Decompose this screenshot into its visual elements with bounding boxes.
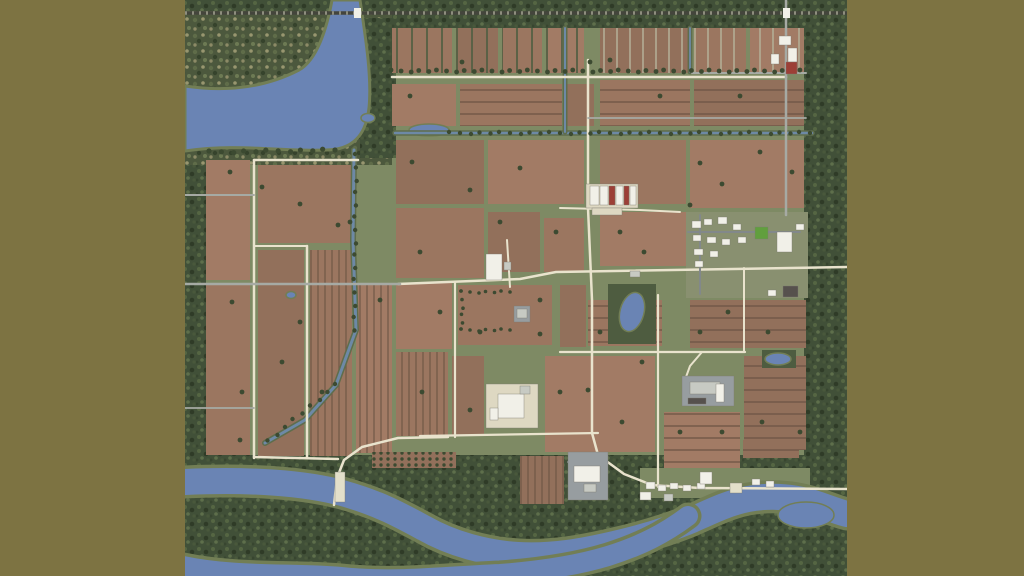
tree-row-tree	[459, 327, 463, 331]
tree	[558, 390, 563, 395]
tree	[598, 330, 603, 335]
tree	[408, 94, 413, 99]
building	[766, 481, 774, 487]
building	[609, 186, 615, 205]
tree-row-tree	[409, 70, 414, 75]
tree-row-tree	[231, 150, 236, 155]
tree-row-tree	[484, 290, 488, 294]
building	[694, 249, 703, 255]
tree-row-tree	[354, 203, 358, 207]
tree-row-tree	[519, 132, 523, 136]
field	[452, 356, 484, 436]
tree-row-tree	[416, 68, 421, 73]
field	[600, 212, 686, 266]
tree-row-tree	[597, 130, 601, 134]
building	[695, 261, 703, 267]
tree-row-tree	[797, 130, 801, 134]
tree-row-tree	[508, 131, 512, 135]
field-rows	[600, 28, 688, 73]
field-rows	[456, 28, 498, 73]
building	[796, 224, 804, 230]
tree-row-tree	[290, 417, 294, 421]
building	[630, 186, 636, 205]
tree-row-tree	[276, 148, 281, 153]
tree	[658, 94, 663, 99]
tree-row-tree	[777, 130, 781, 134]
tree-row-tree	[333, 382, 337, 386]
map-layers	[0, 0, 1024, 576]
tree-row-tree	[681, 70, 686, 75]
building	[786, 62, 797, 74]
building	[777, 232, 792, 252]
tree-row-tree	[447, 130, 451, 134]
building	[590, 186, 599, 205]
tree	[538, 332, 543, 337]
tree-row-tree	[206, 148, 211, 153]
rail-crossing	[783, 8, 790, 18]
building	[335, 472, 345, 502]
building	[707, 237, 716, 243]
building	[690, 382, 720, 394]
tree-row-tree	[454, 70, 459, 75]
tree-row-tree	[669, 132, 673, 136]
building	[574, 466, 600, 482]
building	[592, 208, 622, 215]
tree	[790, 170, 795, 175]
tree-row-tree	[477, 130, 481, 134]
tree-row-tree	[734, 68, 739, 73]
tree	[280, 360, 285, 365]
tree	[760, 420, 765, 425]
pond	[361, 114, 375, 123]
tree-row-tree	[484, 328, 488, 332]
building	[630, 271, 640, 277]
field-rows	[460, 84, 562, 126]
tree	[260, 185, 265, 190]
tree-row-tree	[727, 130, 731, 134]
building	[704, 219, 712, 225]
tree-row-tree	[808, 131, 812, 135]
tree-row-tree	[352, 214, 356, 218]
tree-row-tree	[351, 315, 355, 319]
tree	[798, 430, 803, 435]
tree-row-tree	[490, 69, 495, 74]
field	[458, 285, 552, 345]
tree	[336, 223, 341, 228]
building	[692, 221, 701, 228]
pond	[778, 502, 834, 528]
tree-row-tree	[332, 147, 337, 152]
tree	[240, 390, 245, 395]
tree-row-tree	[780, 68, 785, 73]
tree-row-tree	[697, 130, 701, 134]
tree	[410, 160, 415, 165]
building	[710, 251, 718, 257]
pond	[765, 353, 791, 365]
tree-row-tree	[744, 69, 749, 74]
tree-row-tree	[355, 179, 359, 183]
tree	[758, 150, 763, 155]
tree-row-tree	[353, 304, 357, 308]
field	[396, 208, 484, 278]
tree-row-tree	[352, 290, 356, 294]
building	[688, 398, 706, 404]
tree	[468, 188, 473, 193]
tree-row-tree	[472, 69, 477, 74]
field-rows	[502, 28, 542, 73]
tree-row-tree	[399, 69, 404, 74]
tree-row-tree	[353, 228, 357, 232]
tree-row-tree	[688, 131, 692, 135]
tree-row-tree	[598, 68, 603, 73]
tree	[678, 430, 683, 435]
field	[206, 285, 250, 455]
tree-row-tree	[577, 130, 581, 134]
tree-row-tree	[444, 69, 449, 74]
tree-row-tree	[558, 131, 562, 135]
tree-row-tree	[570, 68, 575, 73]
tree-row-tree	[727, 70, 732, 75]
tree-row-tree	[325, 390, 329, 394]
tree-row-tree	[459, 289, 463, 293]
field	[545, 356, 655, 452]
field-rows	[356, 285, 392, 453]
tree-row-tree	[525, 68, 530, 73]
tree-row-tree	[493, 291, 497, 295]
building	[700, 472, 712, 484]
tree-row-tree	[389, 68, 394, 73]
building	[779, 36, 791, 45]
tree	[468, 408, 473, 413]
building	[771, 54, 779, 64]
tree-row-tree	[654, 69, 659, 74]
tree	[498, 220, 503, 225]
tree-row-tree	[300, 411, 304, 415]
tree-row-tree	[545, 70, 550, 75]
tree-row-tree	[788, 131, 792, 135]
building	[664, 494, 673, 501]
tree	[720, 182, 725, 187]
tree	[418, 250, 423, 255]
forest-east	[804, 11, 847, 503]
tree	[698, 161, 703, 166]
tree-row-tree	[527, 130, 531, 134]
treeline-top-edge	[185, 0, 847, 11]
tree-row-tree	[353, 266, 357, 270]
tree-row-tree	[253, 149, 258, 154]
field-rows	[392, 28, 452, 73]
tree-row-tree	[563, 69, 568, 74]
building	[520, 386, 530, 394]
tree-row-tree	[619, 132, 623, 136]
building	[730, 483, 742, 493]
building	[600, 186, 608, 205]
tree-row-tree	[499, 289, 503, 293]
tree-row-tree	[468, 328, 472, 332]
tree-row-tree	[508, 328, 512, 332]
field	[206, 160, 250, 280]
building	[733, 224, 741, 230]
tree-row-tree	[493, 329, 497, 333]
tree-row-tree	[689, 68, 694, 73]
tree-row-tree	[477, 291, 481, 295]
tree-row-tree	[488, 131, 492, 135]
building	[640, 492, 651, 500]
forest-west-strip	[185, 165, 206, 465]
tree-row-tree	[547, 130, 551, 134]
building	[783, 286, 798, 297]
tree-row-tree	[507, 68, 512, 73]
tree-row-tree	[699, 69, 704, 74]
pond	[286, 292, 296, 299]
tree-row-tree	[638, 131, 642, 135]
field	[488, 140, 584, 204]
tree-row-tree	[241, 148, 246, 153]
tree-row-tree	[738, 131, 742, 135]
tree-row-tree	[588, 131, 592, 135]
tree-row-tree	[772, 70, 777, 75]
orchard-trees	[372, 452, 456, 468]
field	[396, 140, 484, 204]
tree-row-tree	[658, 131, 662, 135]
tree	[808, 328, 813, 333]
tree-row-tree	[538, 131, 542, 135]
tree	[230, 300, 235, 305]
tree-row-tree	[747, 130, 751, 134]
tree	[238, 438, 243, 443]
tree-row-tree	[580, 69, 585, 74]
tree	[642, 250, 647, 255]
tree-row-tree	[354, 165, 358, 169]
tree	[298, 320, 303, 325]
tree-row-tree	[219, 149, 224, 154]
tree-row-tree	[769, 132, 773, 136]
field	[392, 84, 456, 126]
tree	[348, 220, 353, 225]
tree-row-tree	[352, 328, 356, 332]
tree-row-tree	[627, 130, 631, 134]
tree-row-tree	[353, 152, 357, 156]
tree-row-tree	[616, 68, 621, 73]
tree-row-tree	[762, 69, 767, 74]
tree-row-tree	[608, 69, 613, 74]
tree-row-tree	[458, 131, 462, 135]
tree	[698, 330, 703, 335]
tree	[726, 310, 731, 315]
field-rows	[690, 300, 806, 348]
tree-row-tree	[671, 69, 676, 74]
building	[718, 217, 727, 224]
tree	[554, 230, 559, 235]
screenshot-root	[0, 0, 1024, 576]
tree-row-tree	[434, 68, 439, 73]
tree-row-tree	[353, 190, 357, 194]
building	[755, 227, 768, 239]
tree	[620, 420, 625, 425]
tree-row-tree	[647, 130, 651, 134]
tree-row-tree	[263, 147, 268, 152]
tree-row-tree	[708, 131, 712, 135]
building	[624, 186, 629, 205]
tree	[478, 330, 483, 335]
field	[258, 165, 352, 243]
tree	[298, 202, 303, 207]
field-rows	[743, 440, 799, 458]
building	[722, 239, 730, 245]
building	[658, 485, 666, 491]
building	[490, 408, 498, 420]
building	[738, 237, 746, 243]
tree-row-tree	[517, 69, 522, 74]
tree-row-tree	[752, 68, 757, 73]
tree-row-tree	[717, 69, 722, 74]
letterbox-left	[0, 0, 185, 576]
tree-row-tree	[499, 327, 503, 331]
field	[544, 218, 584, 272]
tree	[518, 166, 523, 171]
tree-row-tree	[352, 252, 356, 256]
building	[584, 484, 596, 492]
tree-row-tree	[569, 132, 573, 136]
tree	[538, 298, 543, 303]
tree	[618, 230, 623, 235]
field-rows	[664, 412, 740, 468]
tree-row-tree	[461, 321, 465, 325]
tree-row-tree	[426, 69, 431, 74]
tree	[420, 390, 425, 395]
field	[396, 283, 452, 349]
tree-row-tree	[636, 70, 641, 75]
tree	[608, 58, 613, 63]
tree-row-tree	[798, 68, 803, 73]
tree-row-tree	[553, 68, 558, 73]
tree-row-tree	[308, 403, 312, 407]
tree-row-tree	[661, 68, 666, 73]
tree-row-tree	[310, 148, 315, 153]
letterbox-right	[847, 0, 1024, 576]
map-image	[0, 0, 1024, 576]
tree-row-tree	[500, 70, 505, 75]
building	[486, 254, 502, 280]
building	[517, 309, 527, 318]
tree-row-tree	[591, 70, 596, 75]
field-rows	[744, 356, 806, 450]
tree-row-tree	[626, 69, 631, 74]
tree	[460, 60, 465, 65]
field-rows	[694, 28, 746, 73]
building	[616, 186, 623, 205]
tree-row-tree	[497, 130, 501, 134]
tree-row-tree	[460, 313, 464, 317]
tree-row-tree	[283, 425, 287, 429]
tree-row-tree	[707, 68, 712, 73]
tree-row-tree	[298, 147, 303, 152]
building	[646, 482, 655, 489]
building	[504, 262, 511, 270]
tree	[688, 203, 693, 208]
field	[566, 84, 594, 126]
tree	[228, 170, 233, 175]
building	[788, 48, 797, 62]
tree-row-tree	[462, 68, 467, 73]
tree	[586, 388, 591, 393]
tree-row-tree	[508, 290, 512, 294]
tree-row-tree	[479, 68, 484, 73]
building	[670, 483, 678, 489]
tree-row-tree	[469, 132, 473, 136]
tree-row-tree	[320, 147, 325, 152]
tree	[720, 430, 725, 435]
building	[693, 235, 701, 241]
tree-row-tree	[351, 277, 355, 281]
building	[768, 290, 776, 296]
tree-row-tree	[288, 149, 293, 154]
tree	[738, 94, 743, 99]
tree-row-tree	[461, 306, 465, 310]
tree-row-tree	[644, 68, 649, 73]
field-rows	[520, 456, 564, 504]
tree-row-tree	[468, 290, 472, 294]
tree-row-tree	[318, 398, 322, 402]
field-rows	[694, 80, 804, 126]
building	[498, 394, 524, 418]
tree	[378, 298, 383, 303]
tree-row-tree	[275, 433, 279, 437]
tree	[766, 330, 771, 335]
tree	[640, 360, 645, 365]
building	[752, 479, 760, 485]
building	[716, 384, 724, 402]
tree	[320, 390, 325, 395]
tree-row-tree	[808, 69, 813, 74]
tree	[438, 310, 443, 315]
tree	[588, 60, 593, 65]
rail-crossing	[354, 8, 361, 18]
field-rows	[600, 80, 690, 126]
tree-row-tree	[758, 131, 762, 135]
tree-row-tree	[460, 298, 464, 302]
building	[683, 485, 691, 491]
tree-row-tree	[265, 438, 269, 442]
field	[560, 285, 586, 347]
tree-row-tree	[535, 69, 540, 74]
tree-row-tree	[677, 130, 681, 134]
tree-row-tree	[354, 241, 358, 245]
tree-row-tree	[608, 131, 612, 135]
tree-row-tree	[719, 132, 723, 136]
